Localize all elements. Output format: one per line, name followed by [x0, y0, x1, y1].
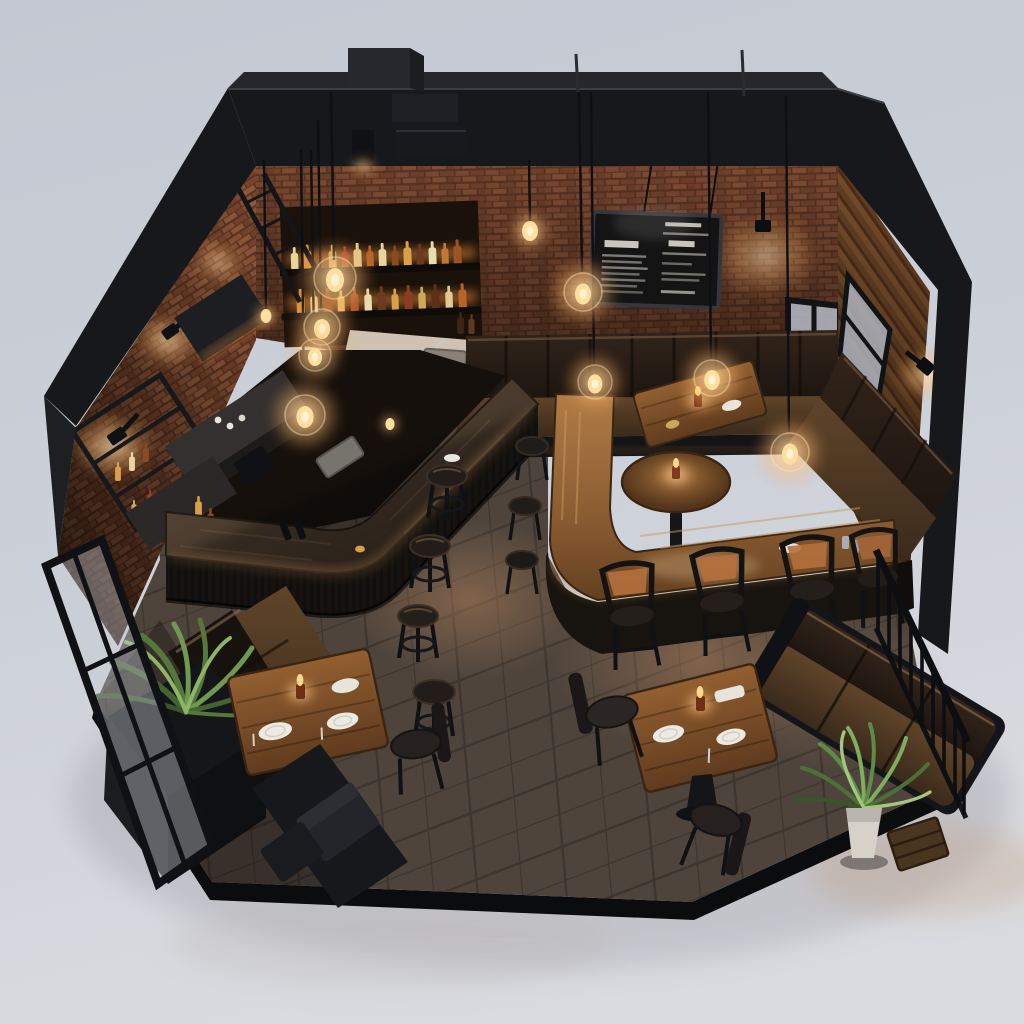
steel-cup: [842, 536, 849, 549]
can-light-glow: [349, 156, 377, 176]
nook-candle-glass: [296, 684, 305, 699]
globe-pendant: [754, 416, 826, 488]
white-pot-rim: [846, 808, 882, 822]
can-light-body: [352, 130, 374, 156]
bar-glass: [355, 546, 365, 553]
bar-napkin: [444, 454, 460, 462]
globe-pendant: [563, 350, 627, 414]
roof-vent-1: [392, 94, 458, 122]
right-candle-flame: [697, 686, 704, 698]
bulb: [385, 418, 394, 430]
globe-pendant: [267, 377, 343, 453]
coffee-cup: [227, 423, 234, 430]
round-table-candle-flame: [673, 458, 679, 468]
nook-candle-flame: [297, 674, 304, 686]
render-canvas: Isometric cutaway 3D render of an indust…: [0, 0, 1024, 1024]
globe-pendant: [285, 325, 345, 385]
roof-rod-2: [742, 50, 744, 96]
bar-interior-render: [0, 0, 1024, 1024]
bulb: [261, 309, 272, 323]
globe-pendant: [547, 256, 619, 328]
roof-top-face: [228, 72, 838, 88]
roof-vent-2: [396, 124, 466, 158]
sconce-head: [755, 220, 771, 232]
roof-rod-1: [576, 54, 578, 92]
globe-pendant: [678, 344, 746, 412]
roof-duct-box: [348, 48, 410, 88]
globe-pendant: [508, 209, 552, 253]
coffee-cup: [215, 417, 222, 424]
right-candle-glass: [696, 696, 705, 711]
coffee-cup: [239, 415, 246, 422]
